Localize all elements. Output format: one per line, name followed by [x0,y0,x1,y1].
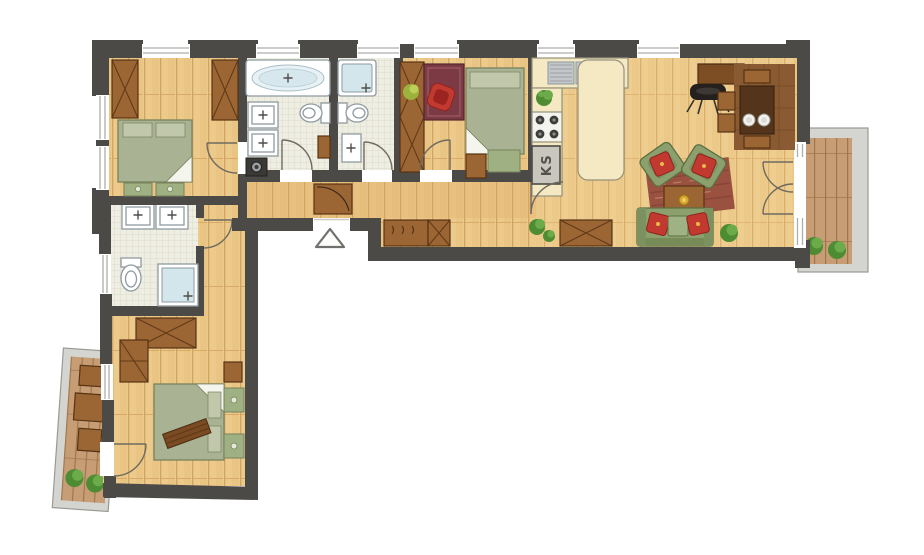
window [96,146,109,190]
dining-chair [718,114,735,132]
wardrobe [112,60,138,118]
toilet [121,258,141,291]
bush [529,219,545,235]
refrigerator: KS [532,146,560,184]
entrance-door [313,218,350,231]
wardrobe [212,60,238,120]
corridor-floor-tint [245,182,536,218]
washbasin [248,130,278,156]
bed-mat [488,150,520,172]
chest [560,220,612,246]
bush [543,230,555,242]
dining-chair [718,92,735,110]
dining-chair [744,70,770,83]
cabinet [318,136,330,158]
kitchen-island [578,60,624,180]
wall [100,294,112,364]
balcony-wall [794,142,806,248]
window [637,44,680,58]
window [101,364,113,400]
dresser [224,362,242,382]
dining-bench [744,136,770,148]
wall-bedroom1-south [105,196,247,205]
plant [403,84,419,100]
wall [102,400,114,442]
washbasin [122,203,154,229]
wall-step [368,218,381,261]
wall-pier [92,188,109,234]
wall-bottom-living [368,247,810,261]
double-bed [118,120,192,182]
wall-pier [298,40,358,58]
window [96,95,109,140]
sofa [637,208,713,246]
floor-plan-page: KS [0,0,924,555]
hall-closet [314,184,352,214]
entrance-marker [316,229,344,247]
double-bed [154,384,224,460]
dining-table [740,86,774,134]
single-bed [466,68,524,154]
bench [466,154,486,178]
bush [828,241,846,259]
fridge-label: KS [540,154,555,176]
wall-right [797,44,810,144]
left-wing [52,196,258,512]
wall [103,306,204,316]
wardrobe [120,340,148,382]
wall-pier [457,40,539,58]
toilet [300,103,330,123]
foot-bench [124,183,152,196]
washbasin [342,134,361,162]
balcony-stool [79,365,103,387]
window [537,44,575,58]
shower [338,60,376,96]
foot-bench [156,183,184,196]
wall-rooms-south [312,170,364,182]
nightstand [224,434,244,458]
window [414,44,459,58]
wall [245,214,258,496]
stove [532,112,562,142]
bathtub [246,60,330,96]
toilet [338,103,368,123]
wardrobe [400,62,424,172]
window [357,44,400,58]
nightstand [224,388,244,412]
shower [158,264,198,306]
washbasin [248,102,278,128]
balcony-table [73,393,104,422]
washbasin [156,203,188,229]
floor-plan-canvas: KS [0,0,924,555]
bush [720,224,738,242]
coat-bench [384,220,428,246]
window [142,44,190,58]
wall-pier [188,40,258,58]
washing-machine [246,158,267,176]
chest [428,220,450,246]
window [99,254,111,294]
wall-pier [573,40,639,58]
wall-pier [92,40,109,96]
window [256,44,300,58]
balcony-stool [77,428,101,452]
